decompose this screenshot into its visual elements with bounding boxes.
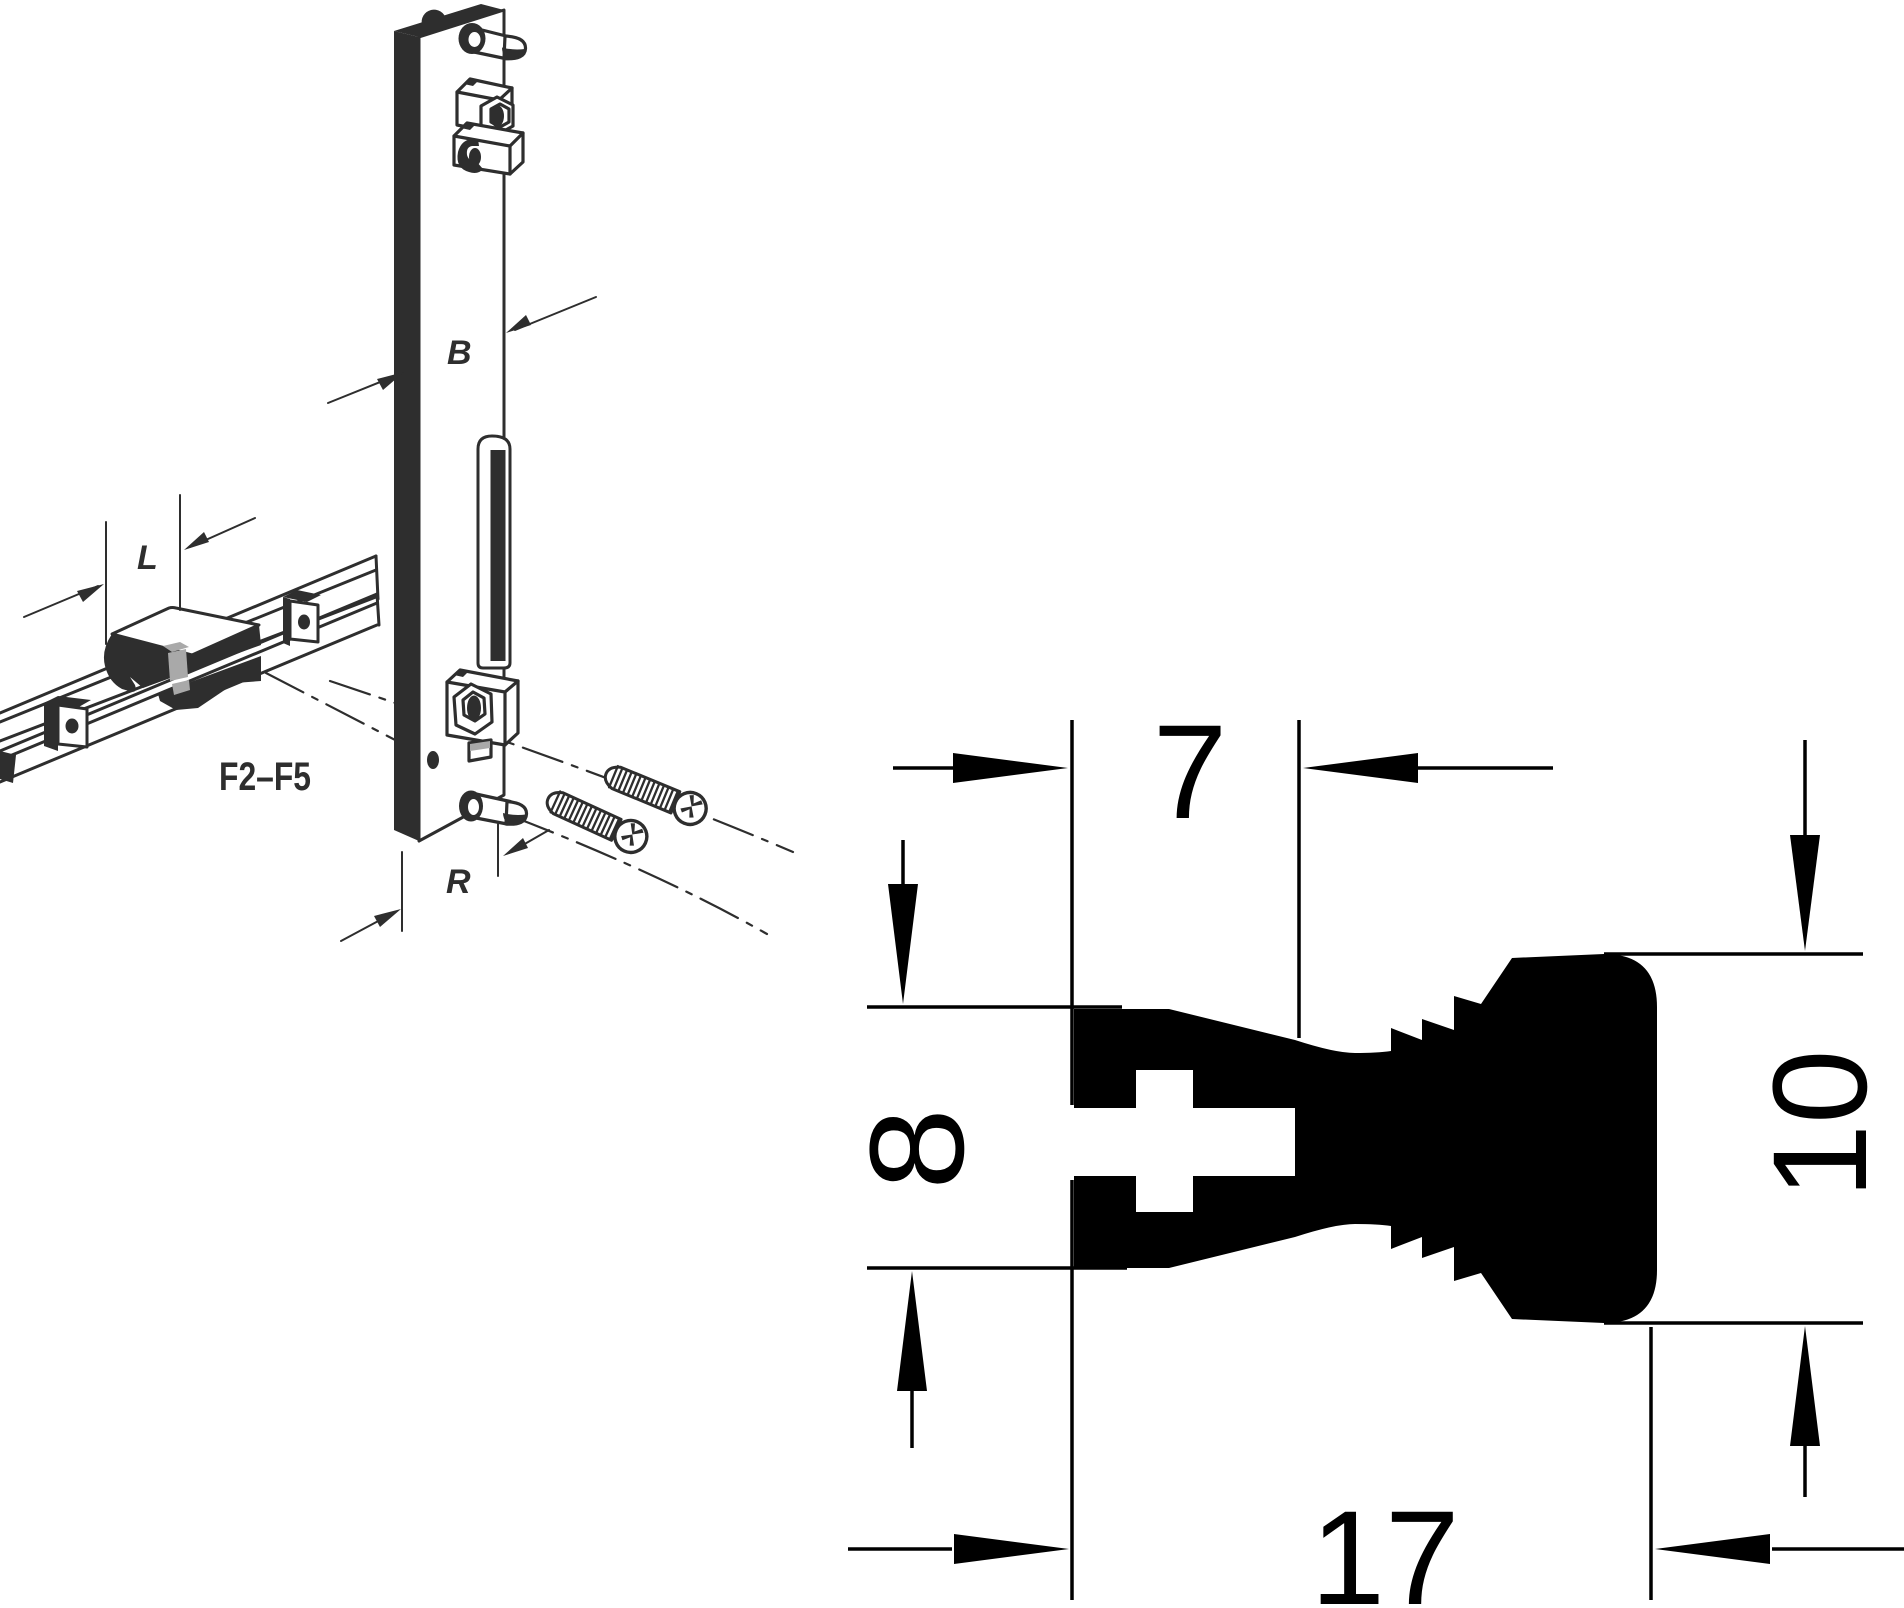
svg-text:17: 17 [1310,1484,1459,1608]
svg-text:R: R [446,863,471,901]
svg-text:8: 8 [841,1108,991,1190]
svg-text:7: 7 [1153,698,1228,847]
svg-text:F2–F5: F2–F5 [219,755,311,799]
svg-text:B: B [447,334,472,372]
svg-text:10: 10 [1746,1049,1895,1198]
svg-text:L: L [137,539,158,577]
